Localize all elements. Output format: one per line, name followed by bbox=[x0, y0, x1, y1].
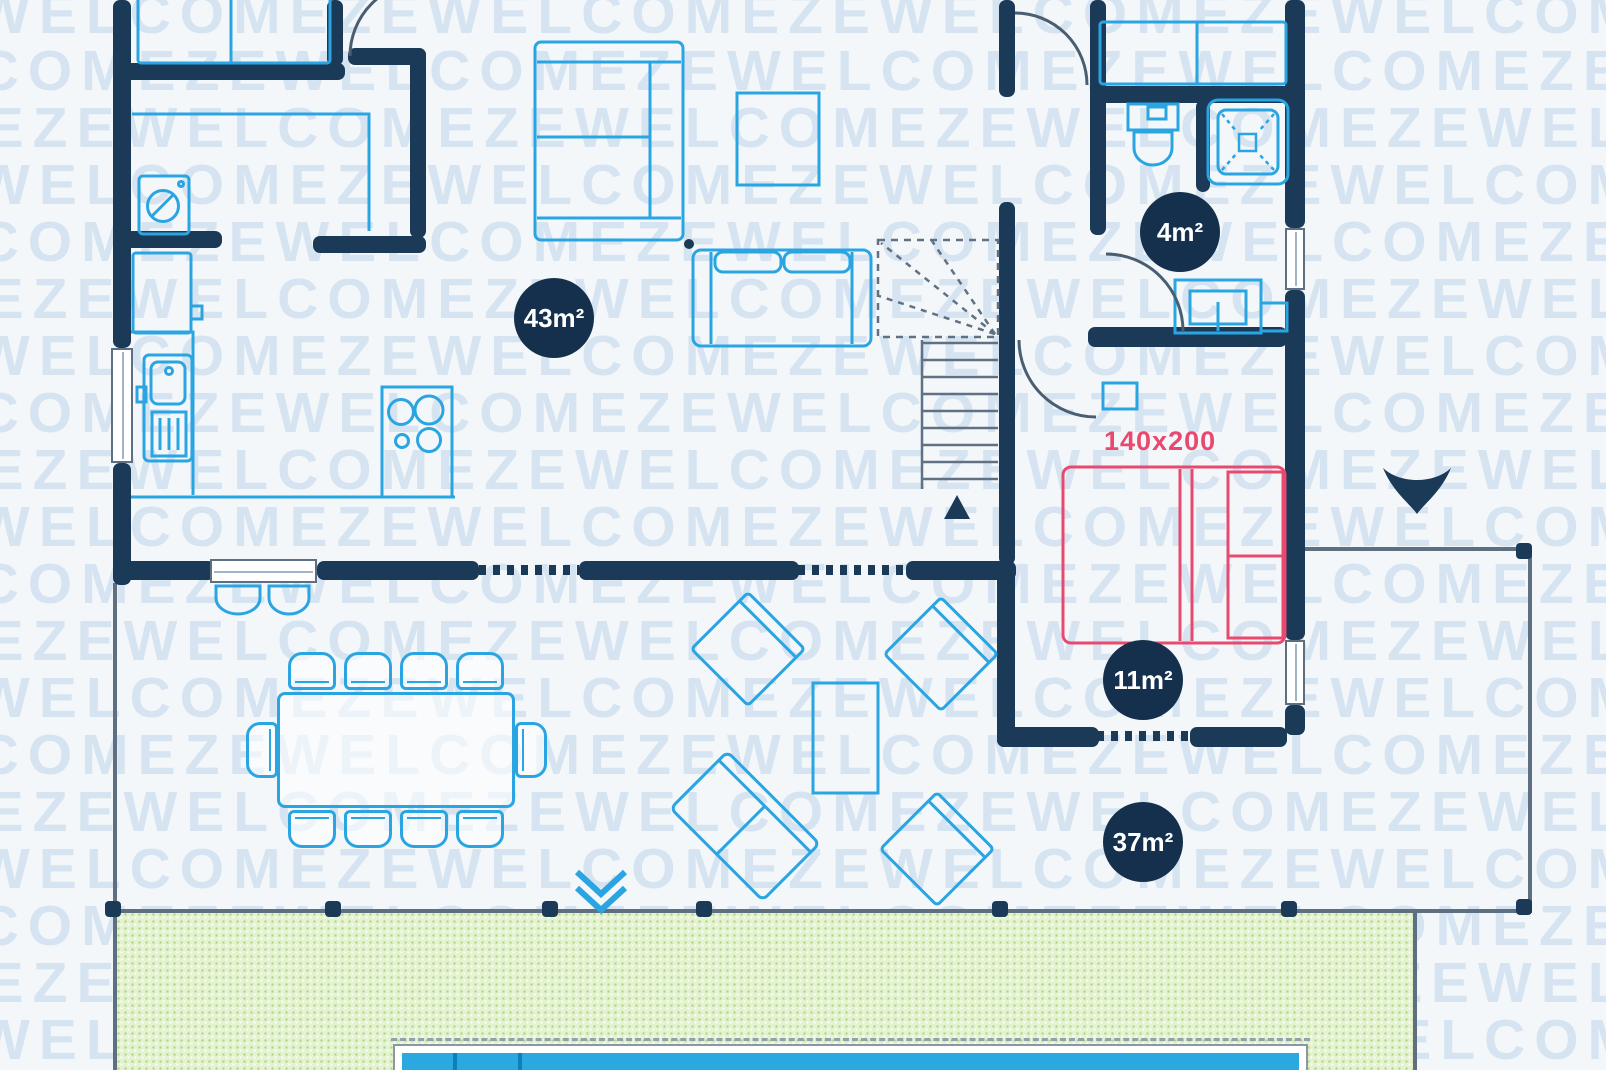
dining-table bbox=[277, 692, 515, 808]
dining-chair bbox=[456, 652, 504, 690]
wall bbox=[410, 48, 426, 238]
opening-dotted bbox=[1097, 731, 1190, 741]
window bbox=[210, 559, 317, 583]
floor-lamp bbox=[684, 239, 694, 249]
terrace-edge-top bbox=[1303, 547, 1532, 551]
area-badge-bedroom: 11m² bbox=[1103, 640, 1183, 720]
bed-size-label: 140x200 bbox=[1104, 426, 1216, 457]
dining-chair bbox=[456, 810, 504, 848]
column-post bbox=[696, 901, 712, 917]
column-post bbox=[1281, 901, 1297, 917]
column-post bbox=[325, 901, 341, 917]
wall bbox=[1285, 705, 1305, 735]
wall bbox=[317, 561, 479, 580]
wall bbox=[999, 202, 1015, 565]
wall bbox=[313, 236, 426, 253]
opening-dotted bbox=[798, 565, 906, 575]
wall bbox=[125, 231, 222, 248]
terrace-corner-post bbox=[1516, 543, 1532, 559]
column-post bbox=[1516, 899, 1532, 915]
wall bbox=[1088, 327, 1287, 347]
wall bbox=[1090, 0, 1106, 235]
wall bbox=[125, 63, 345, 80]
window bbox=[1285, 228, 1305, 290]
wall bbox=[999, 0, 1015, 97]
wall bbox=[579, 561, 799, 580]
living-area-label: 43m² bbox=[524, 303, 585, 334]
wall bbox=[1285, 0, 1305, 228]
wall bbox=[1190, 727, 1287, 747]
wall bbox=[327, 0, 343, 66]
wall bbox=[1285, 290, 1305, 640]
dining-chair bbox=[400, 810, 448, 848]
area-badge-bathroom: 4m² bbox=[1140, 192, 1220, 272]
wall bbox=[113, 0, 131, 348]
bedroom-area-label: 11m² bbox=[1113, 665, 1172, 696]
pool-border bbox=[391, 1038, 1310, 1041]
pool-step-line bbox=[453, 1053, 457, 1070]
dining-chair bbox=[288, 810, 336, 848]
terrace-edge-left bbox=[113, 583, 117, 1070]
pool-water bbox=[402, 1053, 1299, 1070]
wall bbox=[1196, 100, 1210, 192]
pool-step-line bbox=[518, 1053, 522, 1070]
window bbox=[1285, 640, 1305, 705]
wall bbox=[1090, 86, 1305, 103]
wall bbox=[113, 561, 215, 580]
dining-chair bbox=[246, 722, 278, 778]
column-post bbox=[105, 901, 121, 917]
dining-chair bbox=[344, 810, 392, 848]
column-post bbox=[992, 901, 1008, 917]
floor-plan: WELCOMEZEWELCOMEZEWELCOMEZEWELCOMEZEWELC… bbox=[0, 0, 1606, 1070]
window bbox=[111, 348, 133, 463]
dining-chair bbox=[344, 652, 392, 690]
bathroom-area-label: 4m² bbox=[1157, 217, 1203, 248]
terrace-edge-right bbox=[1528, 549, 1532, 913]
opening-dotted bbox=[479, 565, 579, 575]
dining-chair bbox=[515, 722, 547, 778]
garden-edge-right bbox=[1413, 913, 1417, 1070]
area-badge-terrace: 37m² bbox=[1103, 802, 1183, 882]
area-badge-living: 43m² bbox=[514, 278, 594, 358]
dining-chair bbox=[288, 652, 336, 690]
column-post bbox=[542, 901, 558, 917]
wall bbox=[997, 563, 1015, 747]
wall bbox=[997, 727, 1099, 747]
terrace-area-label: 37m² bbox=[1113, 827, 1174, 858]
dining-chair bbox=[400, 652, 448, 690]
